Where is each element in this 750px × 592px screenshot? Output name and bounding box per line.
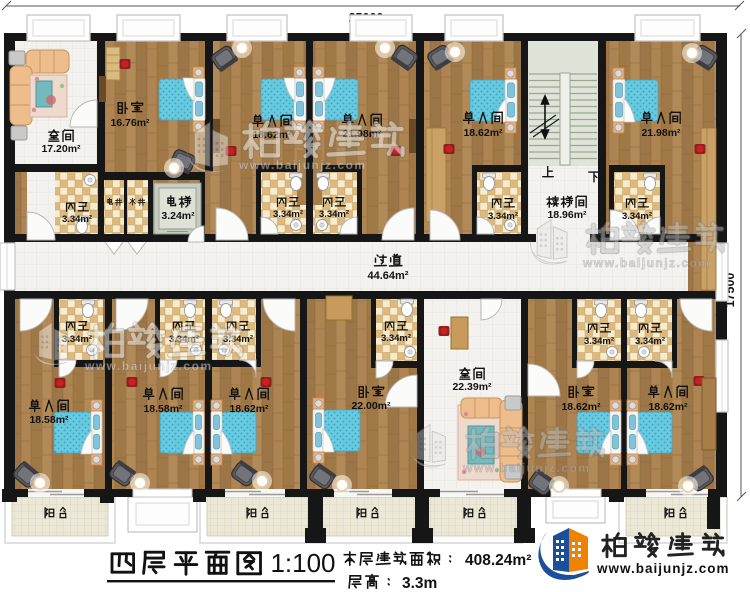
svg-text:21.98m²: 21.98m²	[641, 127, 681, 139]
svg-text:18.62m²: 18.62m²	[463, 127, 503, 139]
svg-text:www.baijunjz.com: www.baijunjz.com	[582, 256, 711, 270]
svg-text:408.24m²: 408.24m²	[465, 552, 531, 569]
svg-text:3.34m²: 3.34m²	[488, 211, 518, 222]
svg-text:18.58m²: 18.58m²	[29, 414, 69, 426]
svg-text:44.64m²: 44.64m²	[368, 270, 409, 282]
svg-text:www.baijunjz.com: www.baijunjz.com	[462, 461, 591, 475]
svg-text:18.96m²: 18.96m²	[547, 209, 587, 221]
svg-text:18.58m²: 18.58m²	[143, 403, 183, 415]
svg-text:3.34m²: 3.34m²	[622, 211, 652, 222]
svg-text:3.34m²: 3.34m²	[635, 336, 665, 347]
svg-text:3.34m²: 3.34m²	[584, 336, 614, 347]
svg-text:3.34m²: 3.34m²	[273, 209, 303, 220]
svg-text:www.baijunjz.com: www.baijunjz.com	[84, 359, 213, 373]
svg-text:1:100: 1:100	[270, 548, 335, 578]
svg-text:18.62m²: 18.62m²	[648, 401, 688, 413]
svg-text:3.34m²: 3.34m²	[381, 333, 411, 344]
svg-text:3.34m²: 3.34m²	[62, 214, 92, 225]
svg-text:3.34m²: 3.34m²	[319, 209, 349, 220]
svg-text:3.24m²: 3.24m²	[161, 210, 195, 222]
svg-text:22.39m²: 22.39m²	[452, 381, 492, 393]
svg-text:22.00m²: 22.00m²	[351, 400, 391, 412]
svg-text:17.20m²: 17.20m²	[41, 143, 81, 155]
svg-text:www.baijunjz.com: www.baijunjz.com	[596, 561, 730, 576]
svg-text:18.62m²: 18.62m²	[229, 403, 269, 415]
svg-text:18.62m²: 18.62m²	[561, 401, 601, 413]
svg-text:16.76m²: 16.76m²	[110, 117, 150, 129]
svg-text:www.baijunjz.com: www.baijunjz.com	[238, 158, 367, 172]
svg-text:3.3m: 3.3m	[402, 575, 437, 592]
